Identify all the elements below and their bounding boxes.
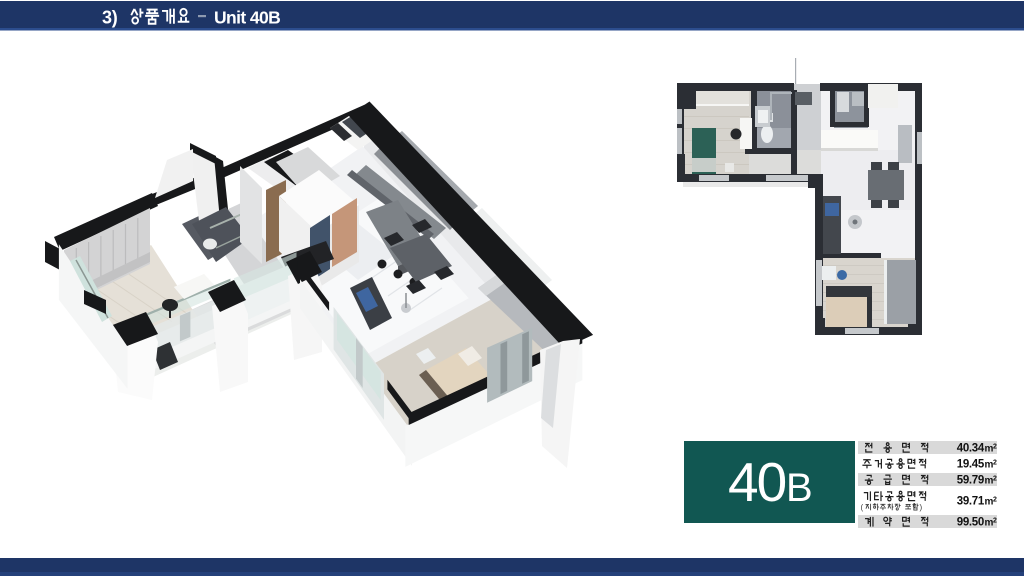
svg-text:): ): [920, 503, 923, 512]
svg-text:2: 2: [993, 518, 997, 525]
svg-text:99.50: 99.50: [957, 517, 984, 529]
svg-text:40: 40: [728, 451, 786, 513]
svg-text:3): 3): [102, 8, 118, 28]
svg-text:Unit 40B: Unit 40B: [214, 8, 280, 28]
svg-text:19.45: 19.45: [957, 459, 985, 471]
svg-text:59.79: 59.79: [957, 475, 984, 487]
svg-text:2: 2: [993, 444, 997, 451]
svg-text:2: 2: [993, 460, 997, 467]
svg-text:2: 2: [993, 476, 997, 483]
svg-text:2: 2: [993, 497, 997, 504]
svg-text:B: B: [786, 466, 813, 510]
svg-text:39.71: 39.71: [957, 496, 985, 508]
svg-text:40.34: 40.34: [957, 443, 985, 455]
svg-text:(: (: [861, 503, 864, 512]
